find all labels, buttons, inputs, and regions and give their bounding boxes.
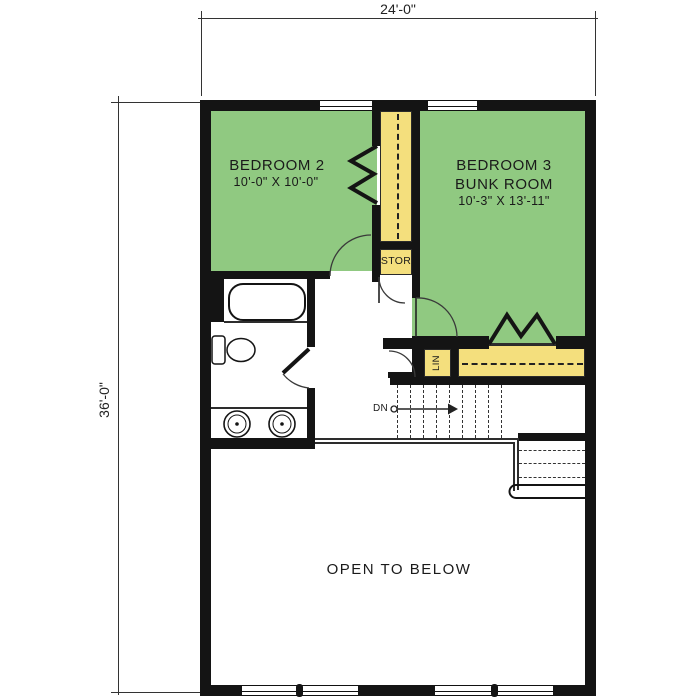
top-dimension-label: 24'-0" [348, 1, 448, 17]
sink-left-drain [235, 422, 239, 426]
sink-right [269, 411, 295, 437]
stair-tread [519, 463, 585, 464]
wall-stub-above-hall-door [383, 338, 412, 349]
floor-plan: 24'-0" 36'-0" [0, 0, 700, 700]
chimney-chase [202, 278, 224, 322]
stor-door-arc [379, 277, 405, 303]
bedroom3-subtitle: BUNK ROOM [419, 176, 589, 193]
stair-tread [475, 385, 476, 438]
stair-tread [397, 385, 398, 438]
toilet-tank [212, 336, 225, 364]
bedroom3-closet-rod [462, 363, 583, 365]
wall-linen-divider [451, 345, 458, 377]
window-glass-line [428, 106, 477, 107]
bedroom3-closet-opening-line [489, 343, 556, 345]
bedroom3-doorway-floor [412, 298, 420, 338]
bedroom3-size: 10'-3" X 13'-11" [419, 194, 589, 208]
stair-landing-edge-right [518, 433, 585, 441]
stair-tread [501, 385, 502, 438]
bedroom3-closet [458, 345, 585, 377]
bedroom2-floor [211, 111, 377, 271]
bedroom3-window [428, 100, 477, 111]
wall-bedroom3-bottom-right [556, 336, 585, 349]
left-dimension-extension-top [111, 102, 200, 103]
stor-label: STOR [379, 255, 413, 267]
bedroom2-closet [380, 111, 412, 242]
stair-tread [519, 450, 585, 451]
top-dimension-extension-right [595, 11, 596, 96]
stair-tread [462, 385, 463, 438]
bedroom3-name: BEDROOM 3 [419, 157, 589, 174]
stair-tread [449, 385, 450, 438]
top-dimension-line [198, 18, 598, 19]
stairwell-guard-outer-v [517, 438, 519, 490]
left-dimension-extension-bottom [111, 692, 200, 693]
bedroom2-closet-rod [397, 114, 399, 239]
bedroom2-size: 10'-0" X 10'-0" [191, 175, 361, 189]
bathroom-door-arc [283, 374, 309, 388]
left-dimension-label: 36'-0" [89, 378, 119, 422]
lin-label: LIN [429, 348, 445, 378]
stairwell-guard-inner-h [315, 442, 514, 444]
sink-left-basin [228, 415, 246, 433]
stair-tread [423, 385, 424, 438]
wall-bathroom-right-upper [307, 271, 315, 347]
wall-closet-face-upper [372, 111, 380, 146]
stair-tread [488, 385, 489, 438]
window-glass-line [320, 106, 372, 107]
bedroom3-floor [420, 111, 585, 338]
sink-left [224, 411, 250, 437]
bathroom-door-leaf [283, 349, 309, 373]
lower-window-left-mullion [296, 684, 303, 697]
stairwell-guard-inner-v [513, 442, 515, 491]
wall-closet-band-bottom [390, 377, 596, 385]
bathtub [229, 284, 305, 320]
vanity-counter-line [211, 407, 307, 409]
lower-window-right-mullion [491, 684, 498, 697]
open-to-below-label: OPEN TO BELOW [299, 561, 499, 578]
dn-label: DN [360, 403, 388, 414]
exterior-wall-left [200, 100, 211, 696]
wall-bathroom-bottom [200, 438, 315, 449]
sink-right-basin [273, 415, 291, 433]
stair-tread [436, 385, 437, 438]
stairwell-guard-outer-h [315, 438, 518, 440]
stair-handrail [510, 485, 585, 498]
stair-tread [410, 385, 411, 438]
tub-alcove-line [224, 321, 307, 323]
toilet-bowl [227, 339, 255, 362]
stair-tread [519, 477, 585, 478]
sink-right-drain [280, 422, 284, 426]
bedroom2-window [320, 100, 372, 111]
bedroom2-name: BEDROOM 2 [192, 157, 362, 174]
top-dimension-extension-left [201, 11, 202, 96]
exterior-wall-top [200, 100, 596, 111]
